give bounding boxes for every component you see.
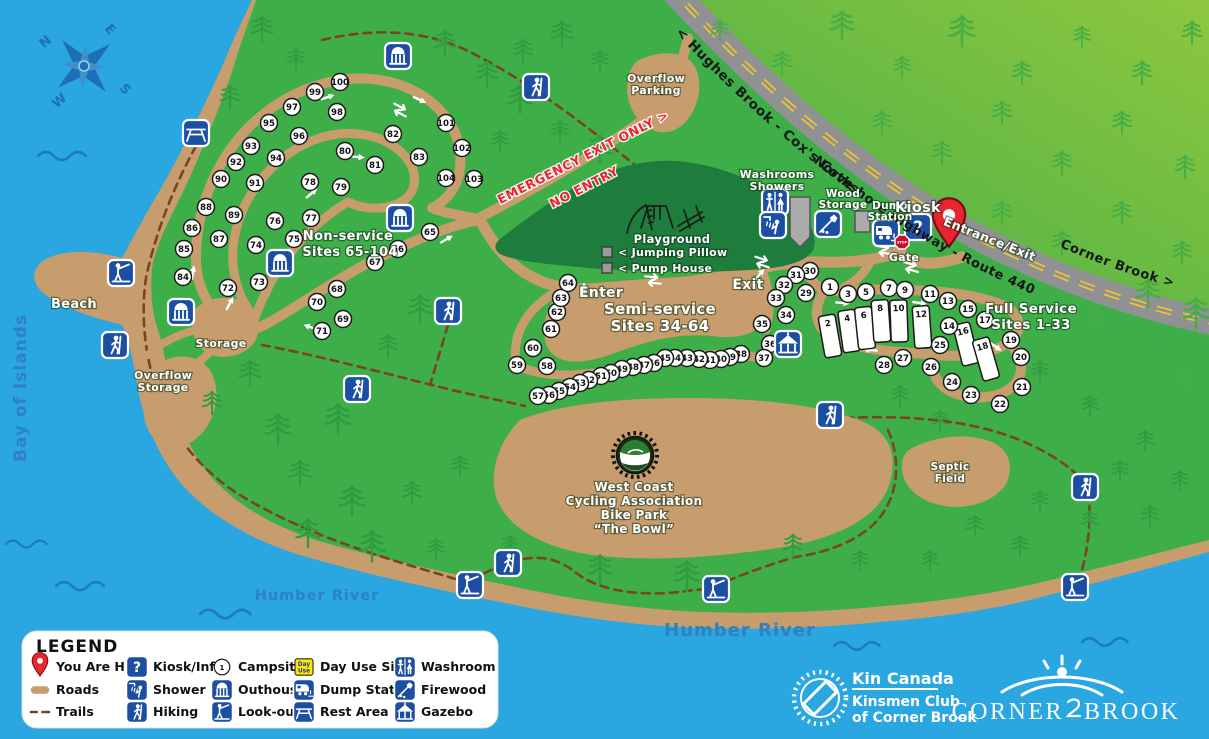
campsite-marker: 28	[876, 357, 893, 374]
campsite-marker: 65	[422, 224, 439, 241]
legend-title: LEGEND	[36, 637, 118, 657]
campsite-marker: 11	[922, 286, 939, 303]
bay-of-islands-label: Bay of Islands	[11, 314, 31, 462]
wood-storage-label-2: Storage	[819, 199, 868, 211]
outhouse-icon	[385, 43, 411, 69]
campsite-marker: 78	[302, 174, 319, 191]
hiking-icon	[817, 402, 843, 428]
campsite-marker: 64	[560, 275, 577, 292]
campsite-marker: 34	[778, 307, 795, 324]
campsite-marker: 69	[335, 311, 352, 328]
campsite-marker: 72	[220, 280, 237, 297]
svg-text:60: 60	[527, 344, 539, 354]
svg-text:93: 93	[245, 142, 257, 152]
svg-text:84: 84	[177, 273, 189, 283]
svg-text:25: 25	[934, 341, 946, 351]
svg-text:73: 73	[253, 278, 265, 288]
campsite-marker: 15	[960, 301, 977, 318]
svg-text:6: 6	[860, 311, 867, 322]
lookout-icon	[108, 260, 134, 286]
svg-text:23: 23	[965, 391, 977, 401]
svg-text:3: 3	[845, 290, 851, 300]
svg-text:101: 101	[437, 119, 455, 129]
campsite-marker: 84	[175, 269, 192, 286]
legend-kiosk-icon: ?	[126, 656, 147, 677]
full-service-pad: 10	[890, 300, 908, 343]
svg-text:57: 57	[532, 392, 544, 402]
svg-text:58: 58	[541, 362, 553, 372]
legend-outhouse-icon	[211, 679, 232, 700]
svg-text:95: 95	[263, 119, 275, 129]
svg-text:103: 103	[465, 175, 483, 185]
svg-text:10: 10	[892, 304, 904, 314]
campsite-marker: 94	[268, 150, 285, 167]
corner-wordmark: CORNER	[952, 699, 1064, 725]
storage-label: Storage	[195, 337, 246, 350]
legend-lookout-icon	[211, 701, 232, 722]
svg-text:65: 65	[424, 228, 436, 238]
campsite-marker: 35	[754, 316, 771, 333]
outhouse-icon	[168, 299, 194, 325]
campsite-marker: 68	[329, 281, 346, 298]
legend-day-use-icon: DayUse	[295, 659, 313, 675]
campsite-marker: 86	[184, 220, 201, 237]
campsite-marker: 75	[286, 231, 303, 248]
kin-canada-wordmark: Kin Canada	[852, 669, 954, 688]
legend-label: Kiosk/Info	[153, 659, 224, 674]
rest-area-icon	[183, 120, 209, 146]
svg-text:87: 87	[213, 235, 225, 245]
svg-text:1: 1	[827, 283, 833, 293]
legend-label: Washroom	[421, 659, 495, 674]
svg-text:77: 77	[305, 214, 317, 224]
campsite-marker: 19	[1003, 332, 1020, 349]
campsite-marker: 58	[539, 358, 556, 375]
campsite-marker: 27	[895, 350, 912, 367]
legend-label: Gazebo	[421, 704, 473, 719]
gazebo-icon	[775, 331, 801, 357]
septic-field-label: Septic	[931, 461, 970, 473]
campsite-marker: 100	[331, 74, 349, 91]
non-service-label: Non-service	[303, 229, 393, 244]
campsite-marker: 90	[213, 171, 230, 188]
svg-text:22: 22	[994, 400, 1006, 410]
beach-label: Beach	[51, 297, 97, 312]
svg-text:34: 34	[780, 311, 792, 321]
campsite-marker: 70	[309, 294, 326, 311]
campsite-marker: 76	[267, 213, 284, 230]
svg-text:63: 63	[555, 294, 567, 304]
campsite-marker: 85	[176, 241, 193, 258]
campsite-marker: 103	[465, 171, 483, 188]
campsite-marker: 82	[385, 126, 402, 143]
legend-shower-icon	[126, 679, 147, 700]
svg-text:80: 80	[339, 147, 351, 157]
legend-gazebo-icon	[394, 701, 415, 722]
campsite-marker: 79	[333, 179, 350, 196]
svg-text:64: 64	[562, 279, 574, 289]
legend-label: Hiking	[153, 704, 198, 719]
campsite-marker: 22	[992, 396, 1009, 413]
campsite-marker: 97	[284, 99, 301, 116]
svg-text:62: 62	[551, 308, 563, 318]
svg-text:88: 88	[200, 203, 212, 213]
legend-dump-icon	[293, 679, 314, 700]
pump-house-marker	[602, 263, 612, 273]
svg-text:82: 82	[387, 130, 399, 140]
svg-text:33: 33	[770, 294, 782, 304]
bike-park-label-4: “The Bowl”	[594, 522, 674, 536]
semi-service-label: Semi-service	[604, 300, 716, 318]
campsite-marker: 102	[453, 140, 471, 157]
svg-text:9: 9	[902, 286, 908, 296]
svg-text:70: 70	[311, 298, 323, 308]
full-service-label-2: Sites 1-33	[991, 317, 1070, 333]
legend-campsite-icon: 1	[214, 659, 230, 675]
full-service-label: Full Service	[985, 301, 1077, 317]
campsite-marker: 20	[1013, 349, 1030, 366]
hiking-icon	[344, 376, 370, 402]
showers-label: Showers	[749, 180, 804, 193]
full-service-pad: 8	[871, 299, 891, 342]
firewood-icon	[815, 211, 841, 237]
campsite-marker: 1	[822, 279, 839, 296]
svg-text:96: 96	[293, 132, 305, 142]
svg-text:59: 59	[511, 361, 523, 371]
legend-label: Shower	[153, 682, 207, 697]
svg-text:69: 69	[337, 315, 349, 325]
exit-label: Exit	[732, 277, 763, 293]
pump-house-label: < Pump House	[618, 262, 712, 275]
svg-text:72: 72	[222, 284, 234, 294]
svg-text:27: 27	[897, 354, 909, 364]
campsite-marker: 96	[291, 128, 308, 145]
campsite-marker: 33	[768, 290, 785, 307]
campsite-marker: 88	[198, 199, 215, 216]
svg-text:99: 99	[309, 88, 321, 98]
svg-text:20: 20	[1015, 353, 1027, 363]
legend-label: Trails	[56, 704, 94, 719]
outhouse-icon	[387, 205, 413, 231]
bike-park-label-3: Bike Park	[601, 508, 668, 522]
campsite-marker: 23	[963, 387, 980, 404]
campsite-marker: 60	[525, 340, 542, 357]
shower-icon	[760, 212, 786, 238]
svg-text:98: 98	[331, 108, 343, 118]
bike-park-label: West Coast	[594, 480, 673, 494]
svg-text:78: 78	[304, 178, 316, 188]
legend-panel: LEGEND You Are Here?Kiosk/Info1Campsites…	[22, 631, 498, 728]
svg-text:100: 100	[331, 78, 349, 88]
lookout-icon	[457, 572, 483, 598]
campsite-marker: 80	[337, 143, 354, 160]
campsite-marker: 59	[509, 357, 526, 374]
campground-map-page: 246810121618 135791113141517192021222324…	[0, 0, 1209, 739]
svg-text:32: 32	[778, 281, 790, 291]
campsite-marker: 91	[247, 175, 264, 192]
campsite-marker: 24	[944, 374, 961, 391]
campsite-marker: 98	[329, 104, 346, 121]
svg-text:35: 35	[756, 320, 768, 330]
svg-text:17: 17	[979, 316, 991, 326]
campsite-marker: 14	[941, 318, 958, 335]
svg-text:5: 5	[863, 288, 869, 298]
campground-map: 246810121618 135791113141517192021222324…	[0, 0, 1209, 739]
playground-label: Playground	[634, 232, 711, 246]
kinsmen-club-text: Kinsmen Club	[852, 694, 960, 710]
svg-text:81: 81	[369, 161, 381, 171]
svg-text:104: 104	[437, 174, 455, 184]
svg-text:28: 28	[878, 361, 890, 371]
svg-text:91: 91	[249, 179, 261, 189]
lookout-icon	[1062, 574, 1088, 600]
legend-firewood-icon	[394, 679, 415, 700]
svg-text:Day: Day	[298, 662, 310, 668]
svg-text:1: 1	[220, 663, 225, 672]
campsite-marker: 21	[1014, 379, 1031, 396]
svg-text:79: 79	[335, 183, 347, 193]
campsite-marker: 73	[251, 274, 268, 291]
svg-text:76: 76	[269, 217, 281, 227]
svg-text:89: 89	[228, 211, 240, 221]
svg-text:90: 90	[215, 175, 227, 185]
campsite-marker: 3	[840, 286, 857, 303]
campsite-marker: 95	[261, 115, 278, 132]
svg-text:85: 85	[178, 245, 190, 255]
svg-text:31: 31	[790, 271, 802, 281]
campsite-marker: 81	[367, 157, 384, 174]
campsite-marker: 29	[798, 285, 815, 302]
campsite-marker: 13	[940, 293, 957, 310]
bike-park-label-2: Cycling Association	[566, 494, 703, 508]
svg-text:37: 37	[758, 354, 770, 364]
septic-field-label-2: Field	[935, 473, 966, 485]
legend-label: Firewood	[421, 682, 486, 697]
legend-label: Look-out	[238, 704, 300, 719]
svg-text:?: ?	[133, 660, 141, 676]
svg-text:Use: Use	[298, 668, 310, 674]
svg-text:71: 71	[316, 327, 328, 337]
svg-text:61: 61	[545, 325, 557, 335]
humber-river-label: Humber River	[255, 588, 380, 604]
legend-roads-icon	[31, 686, 49, 693]
washroom-building	[790, 197, 810, 247]
svg-text:75: 75	[288, 235, 300, 245]
svg-text:74: 74	[250, 241, 262, 251]
svg-text:7: 7	[886, 284, 892, 294]
legend-rest-area-icon	[293, 701, 314, 722]
campsite-marker: 77	[303, 210, 320, 227]
hiking-icon	[495, 550, 521, 576]
svg-text:97: 97	[286, 103, 298, 113]
svg-text:11: 11	[924, 290, 936, 300]
lookout-icon	[703, 576, 729, 602]
svg-text:102: 102	[453, 144, 471, 154]
kiosk-label: Kiosk	[895, 200, 941, 216]
enter-label: Enter	[579, 285, 623, 301]
campsite-marker: 7	[881, 280, 898, 297]
svg-text:13: 13	[942, 297, 954, 307]
svg-text:83: 83	[413, 153, 425, 163]
overflow-parking-label-2: Parking	[631, 84, 681, 97]
svg-text:8: 8	[877, 304, 884, 314]
campsite-marker: 57	[530, 388, 547, 405]
gate-label: Gate	[889, 251, 919, 264]
campsite-marker: 37	[756, 350, 773, 367]
campsite-marker: 89	[226, 207, 243, 224]
campsite-marker: 74	[248, 237, 265, 254]
humber-river-label-2: Humber River	[664, 620, 816, 641]
svg-text:86: 86	[186, 224, 198, 234]
svg-text:29: 29	[800, 289, 812, 299]
svg-text:14: 14	[943, 322, 955, 332]
svg-text:19: 19	[1005, 336, 1017, 346]
brook-wordmark: BROOK	[1084, 699, 1181, 725]
hiking-icon	[1072, 474, 1098, 500]
legend-hiking-icon	[126, 701, 147, 722]
svg-text:30: 30	[804, 267, 816, 277]
legend-label: Roads	[56, 682, 99, 697]
svg-text:68: 68	[331, 285, 343, 295]
svg-text:15: 15	[962, 305, 974, 315]
overflow-storage-label-2: Storage	[137, 381, 188, 394]
campsite-marker: 9	[897, 282, 914, 299]
svg-text:92: 92	[230, 158, 242, 168]
legend-label: Rest Area	[320, 704, 389, 719]
campsite-marker: 101	[437, 115, 455, 132]
legend-washroom-icon	[394, 656, 415, 677]
svg-text:24: 24	[946, 378, 958, 388]
svg-text:21: 21	[1016, 383, 1028, 393]
campsite-marker: 93	[243, 138, 260, 155]
svg-text:26: 26	[925, 363, 937, 373]
semi-service-label-2: Sites 34-64	[611, 317, 710, 335]
non-service-label-2: Sites 65-104	[302, 245, 397, 260]
hiking-icon	[523, 74, 549, 100]
hiking-icon	[102, 332, 128, 358]
sun-icon	[1057, 667, 1067, 677]
jumping-pillow-label: < Jumping Pillow	[618, 246, 728, 259]
stop-sign-icon: STOP	[895, 235, 909, 249]
campsite-marker: 61	[543, 321, 560, 338]
jumping-pillow-marker	[602, 247, 612, 257]
campsite-marker: 104	[437, 170, 455, 187]
campsite-marker: 26	[923, 359, 940, 376]
campsite-marker: 71	[314, 323, 331, 340]
full-service-pad: 12	[912, 305, 932, 348]
campsite-marker: 87	[211, 231, 228, 248]
svg-text:12: 12	[915, 310, 928, 321]
outhouse-icon	[267, 250, 293, 276]
campsite-marker: 92	[228, 154, 245, 171]
hiking-icon	[435, 298, 461, 324]
campsite-marker: 83	[411, 149, 428, 166]
campsite-marker: 99	[307, 84, 324, 101]
campsite-marker: 5	[858, 284, 875, 301]
stop-sign-text: STOP	[897, 240, 908, 244]
svg-text:94: 94	[270, 154, 282, 164]
campsite-marker: 25	[932, 337, 949, 354]
